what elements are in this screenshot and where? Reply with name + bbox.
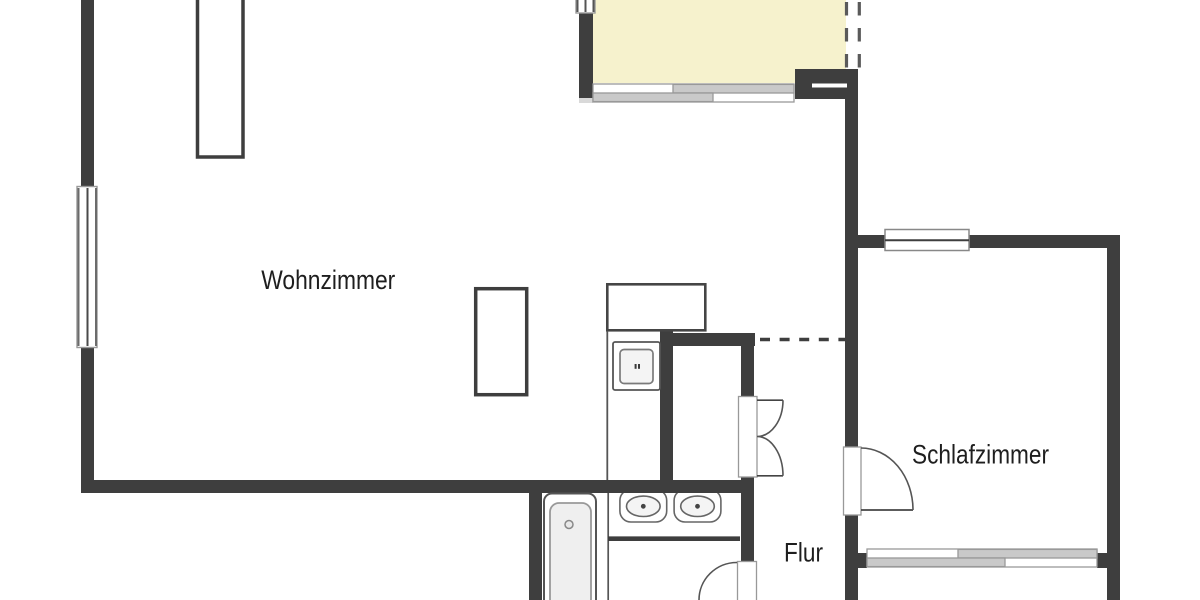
svg-text:Flur: Flur — [784, 537, 823, 567]
svg-text:Wohnzimmer: Wohnzimmer — [261, 265, 395, 295]
svg-text:Schlafzimmer: Schlafzimmer — [912, 439, 1049, 469]
